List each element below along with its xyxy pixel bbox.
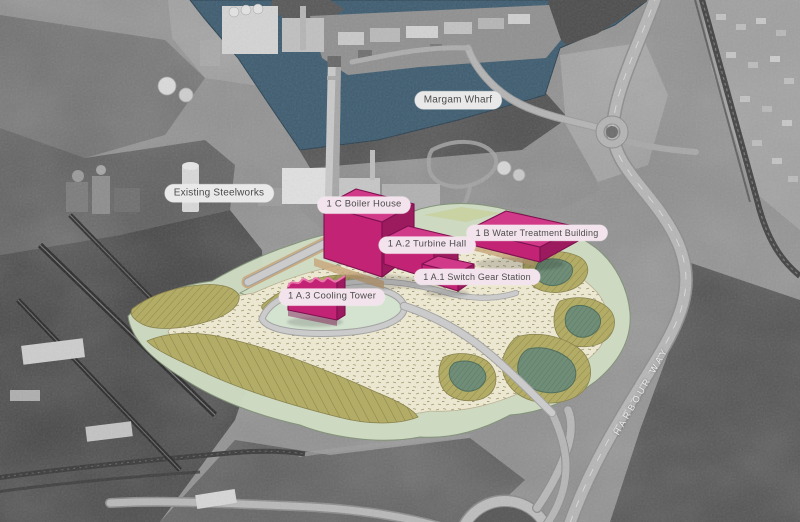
aerial-photo-canvas	[0, 0, 800, 522]
label-water-treatment-building: 1 B Water Treatment Building	[467, 225, 608, 241]
label-turbine-hall: 1 A.2 Turbine Hall	[379, 237, 476, 254]
label-cooling-tower: 1 A.3 Cooling Tower	[279, 289, 385, 306]
label-switch-gear-station: 1 A.1 Switch Gear Station	[414, 269, 540, 285]
label-margam-wharf: Margam Wharf	[415, 91, 502, 109]
aerial-site-plan-visualisation: Margam Wharf Existing Steelworks 1 C Boi…	[0, 0, 800, 522]
label-boiler-house: 1 C Boiler House	[317, 197, 410, 214]
label-existing-steelworks: Existing Steelworks	[165, 184, 274, 202]
